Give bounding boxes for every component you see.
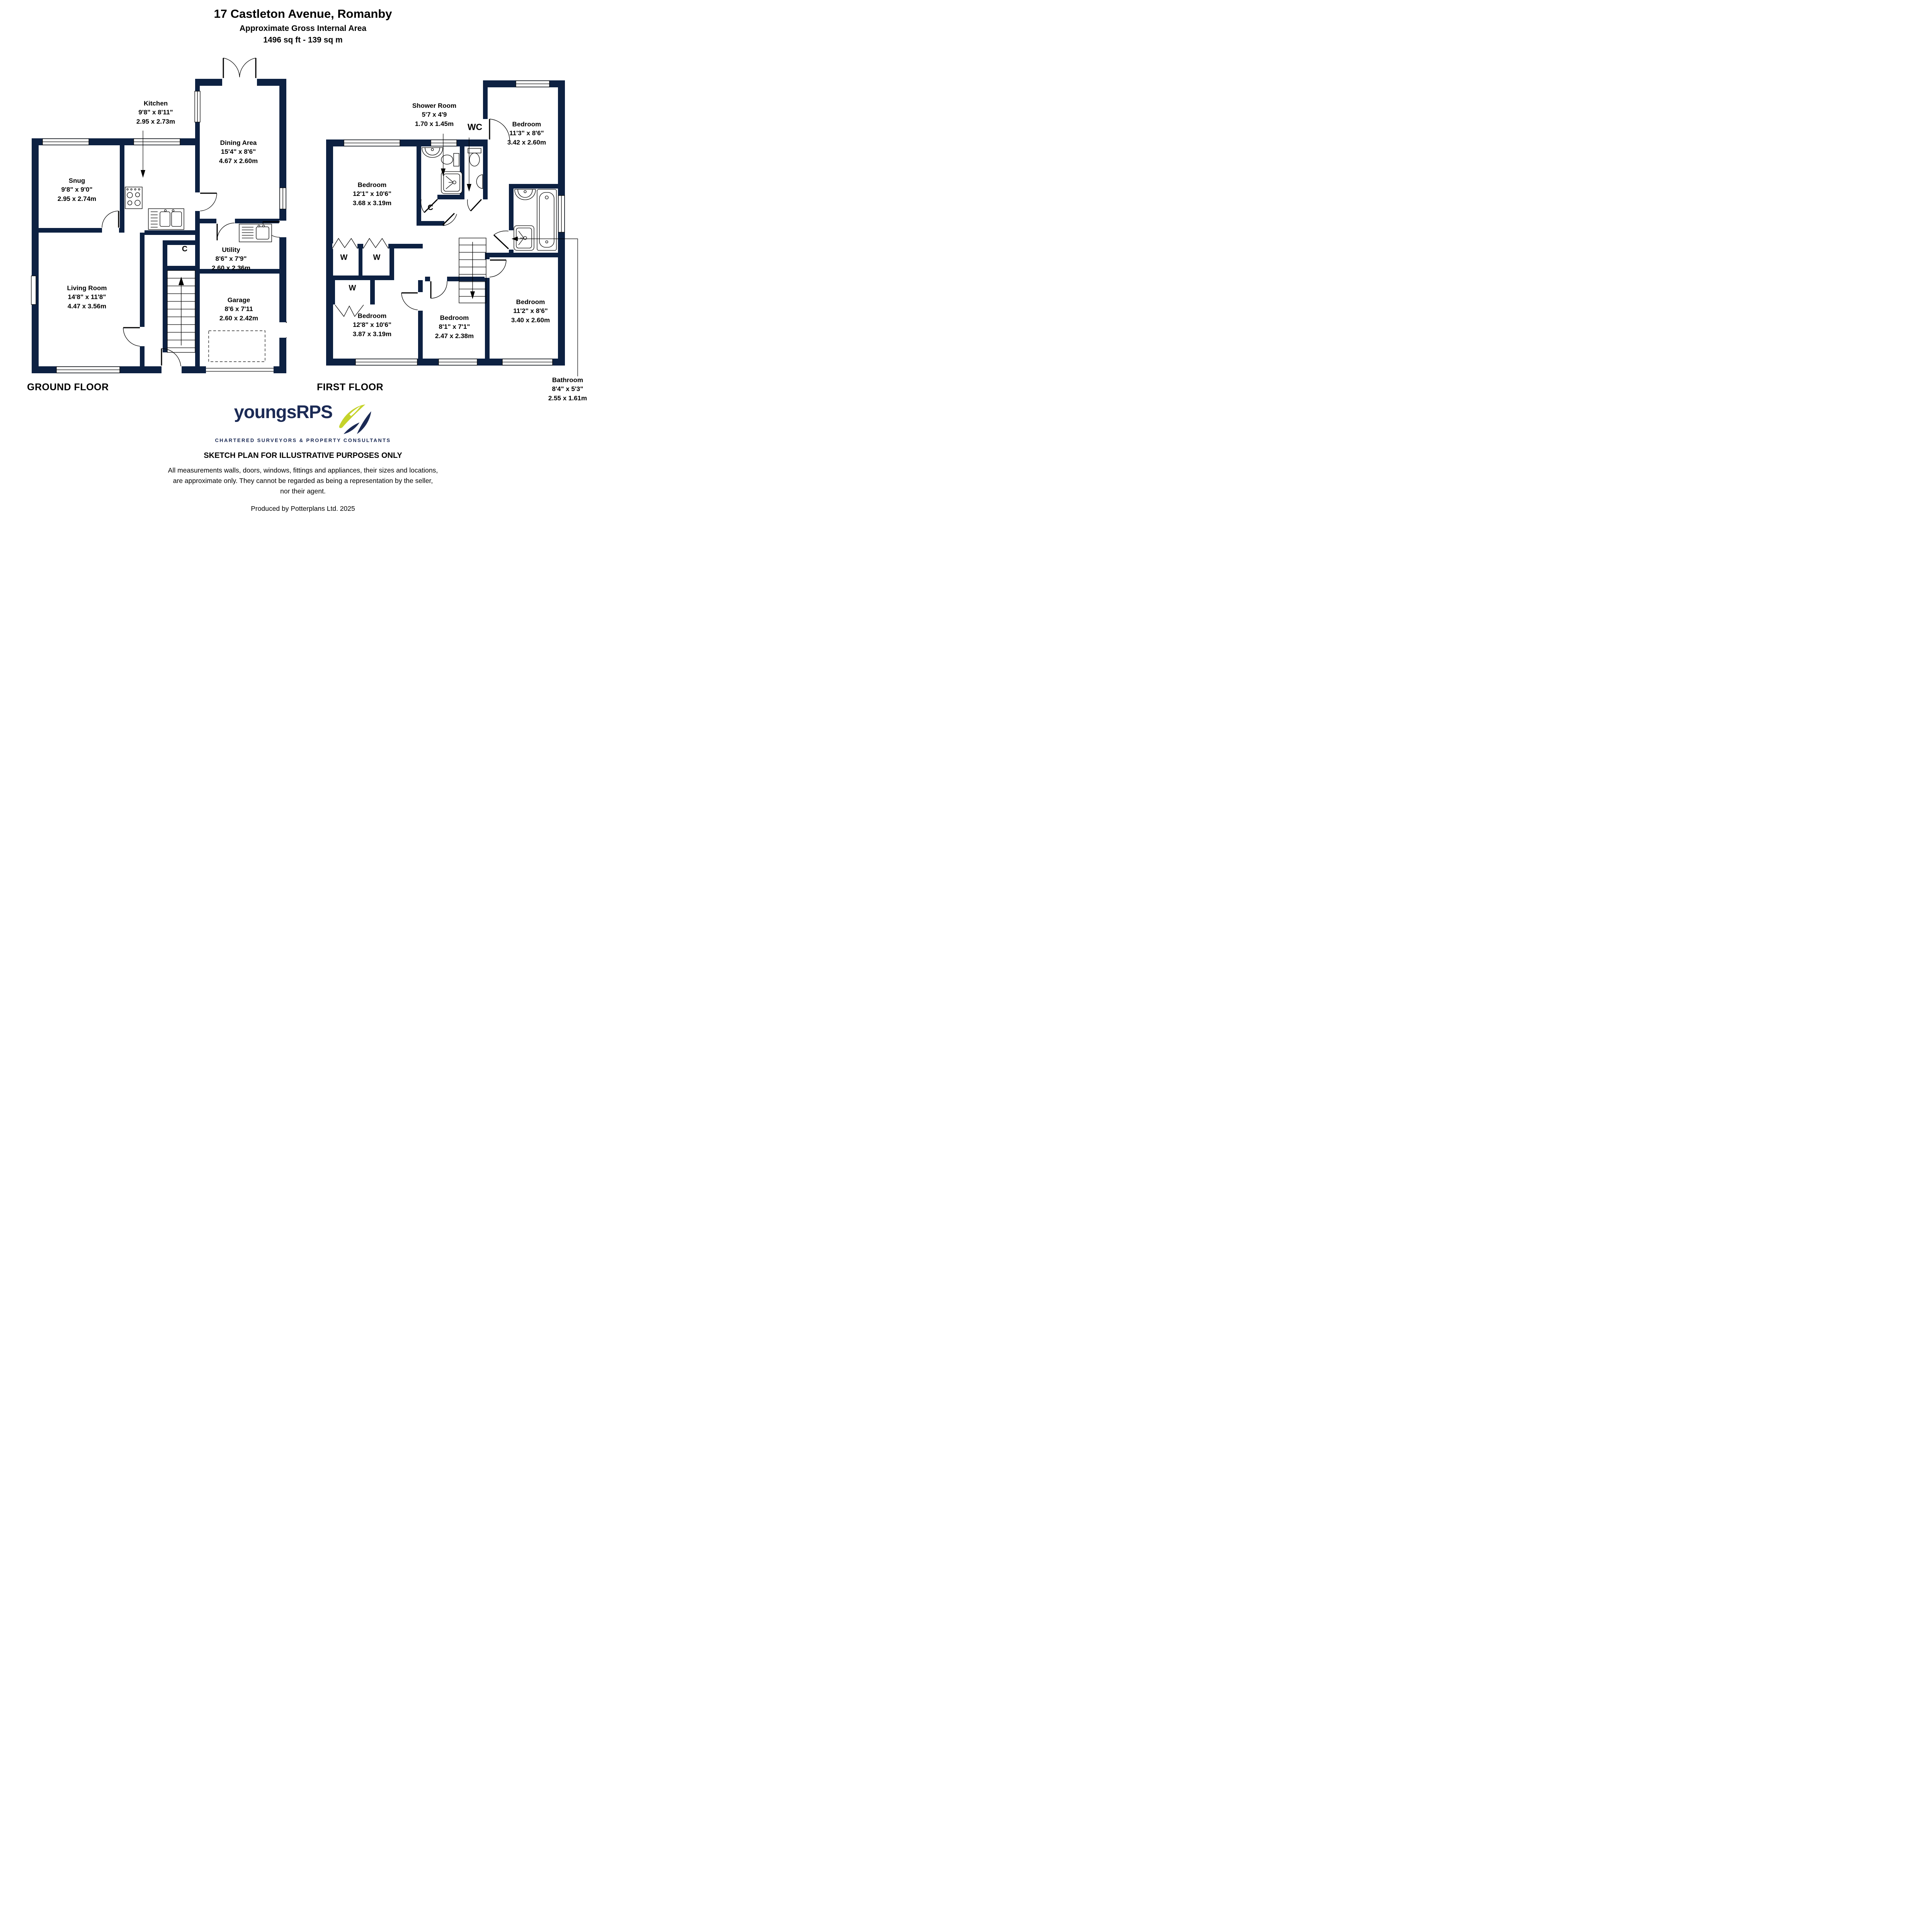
sketch-notice: SKETCH PLAN FOR ILLUSTRATIVE PURPOSES ON…: [0, 451, 606, 460]
room-label-bedroom-se: Bedroom 11'2" x 8'6" 3.40 x 2.60m: [511, 298, 550, 325]
room-dims-imperial: 11'3" x 8'6": [507, 129, 546, 138]
shower-room-basin-icon: [422, 148, 443, 158]
ff-stairs: [459, 238, 486, 303]
title-block: 17 Castleton Avenue, Romanby Approximate…: [0, 7, 606, 45]
room-dims-metric: 2.60 x 2.42m: [219, 314, 258, 323]
gf-doors: [102, 58, 287, 366]
room-label-shower-room: Shower Room 5'7 x 4'9 1.70 x 1.45m: [412, 101, 456, 128]
room-dims-metric: 2.55 x 1.61m: [548, 394, 587, 403]
room-dims-imperial: 5'7 x 4'9: [412, 110, 456, 119]
room-dims-metric: 2.47 x 2.38m: [435, 332, 474, 340]
agency-logo: youngsRPS CHARTERED SURVEYORS & PROPERTY…: [0, 403, 606, 443]
stairs-down-arrow-icon: [470, 291, 475, 299]
gf-stairs: [167, 270, 195, 352]
room-dims-imperial: 8'6" x 7'9": [212, 254, 250, 263]
wc-basin-icon: [476, 175, 483, 189]
floorplan-page: 17 Castleton Avenue, Romanby Approximate…: [0, 0, 606, 526]
room-label-bedroom-sw: Bedroom 12'8" x 10'6" 3.87 x 3.19m: [353, 311, 391, 338]
produced-by: Produced by Potterplans Ltd. 2025: [0, 505, 606, 513]
room-label-bedroom-ne: Bedroom 11'3" x 8'6" 3.42 x 2.60m: [507, 120, 546, 147]
disclaimer-text: All measurements walls, doors, windows, …: [168, 465, 438, 497]
cupboard-label-ff: C: [428, 204, 433, 213]
page-subtitle: Approximate Gross Internal Area: [0, 24, 606, 33]
wardrobe-label-3: W: [349, 284, 356, 293]
room-dims-metric: 1.70 x 1.45m: [412, 119, 456, 128]
garage-parking-outline: [209, 331, 265, 362]
room-dims-imperial: 11'2" x 8'6": [511, 306, 550, 315]
room-label-kitchen: Kitchen 9'8" x 8'11" 2.95 x 2.73m: [136, 99, 175, 126]
room-label-dining: Dining Area 15'4" x 8'6" 4.67 x 2.60m: [219, 138, 258, 165]
room-label-bedroom-nw: Bedroom 12'1" x 10'6" 3.68 x 3.19m: [353, 180, 391, 207]
room-name: Dining Area: [219, 138, 258, 147]
shower-cubicle-icon: [441, 172, 462, 194]
room-label-garage: Garage 8'6 x 7'11 2.60 x 2.42m: [219, 296, 258, 323]
wardrobe-label-2: W: [373, 253, 381, 262]
shower-room-toilet-icon: [441, 153, 459, 166]
room-dims-imperial: 9'8" x 8'11": [136, 108, 175, 117]
wc-label: WC: [468, 122, 482, 133]
brand-swoosh-icon: [335, 403, 372, 436]
room-label-snug: Snug 9'8" x 9'0" 2.95 x 2.74m: [58, 176, 96, 203]
room-dims-metric: 2.95 x 2.73m: [136, 117, 175, 126]
room-dims-metric: 3.68 x 3.19m: [353, 199, 391, 207]
bath-icon: [537, 189, 556, 250]
room-name: Bedroom: [507, 120, 546, 129]
room-dims-metric: 3.42 x 2.60m: [507, 138, 546, 147]
first-floor-title: FIRST FLOOR: [317, 382, 383, 393]
room-label-living: Living Room 14'8" x 11'8" 4.47 x 3.56m: [67, 284, 107, 311]
room-name: Bedroom: [511, 298, 550, 306]
brand-name: youngsRPS: [234, 403, 333, 421]
brand-tagline: CHARTERED SURVEYORS & PROPERTY CONSULTAN…: [215, 437, 391, 443]
ground-floor-title: GROUND FLOOR: [27, 382, 109, 393]
room-dims-imperial: 8'6 x 7'11: [219, 304, 258, 313]
room-label-bathroom: Bathroom 8'4" x 5'3" 2.55 x 1.61m: [548, 376, 587, 403]
hob-icon: [125, 187, 142, 209]
room-dims-imperial: 9'8" x 9'0": [58, 185, 96, 194]
room-dims-metric: 2.60 x 2.36m: [212, 264, 250, 272]
gf-kitchen-leader-arrow: [141, 131, 145, 178]
room-dims-imperial: 8'4" x 5'3": [548, 384, 587, 393]
room-name: Bedroom: [353, 311, 391, 320]
utility-sink-icon: [239, 224, 272, 242]
room-name: Garage: [219, 296, 258, 304]
room-name: Snug: [58, 176, 96, 185]
kitchen-sink-icon: [148, 209, 184, 230]
page-title: 17 Castleton Avenue, Romanby: [0, 7, 606, 21]
room-dims-imperial: 15'4" x 8'6": [219, 147, 258, 156]
page-area: 1496 sq ft - 139 sq m: [0, 36, 606, 45]
ground-floor-plan: [30, 49, 287, 377]
room-label-bedroom-s: Bedroom 8'1" x 7'1" 2.47 x 2.38m: [435, 313, 474, 340]
bathroom-basin-icon: [515, 189, 536, 200]
cupboard-label-gf: C: [182, 245, 187, 254]
room-label-utility: Utility 8'6" x 7'9" 2.60 x 2.36m: [212, 245, 250, 272]
room-dims-imperial: 12'1" x 10'6": [353, 189, 391, 198]
stairs-up-arrow-icon: [179, 277, 184, 285]
room-name: Kitchen: [136, 99, 175, 108]
room-dims-imperial: 8'1" x 7'1": [435, 322, 474, 331]
room-dims-metric: 3.87 x 3.19m: [353, 330, 391, 338]
room-dims-metric: 4.67 x 2.60m: [219, 156, 258, 165]
room-name: Shower Room: [412, 101, 456, 110]
room-dims-metric: 3.40 x 2.60m: [511, 316, 550, 325]
gf-garage-door: [206, 366, 274, 374]
room-dims-imperial: 12'8" x 10'6": [353, 320, 391, 329]
wc-toilet-icon: [468, 148, 481, 166]
room-dims-imperial: 14'8" x 11'8": [67, 293, 107, 301]
room-name: Utility: [212, 245, 250, 254]
room-dims-metric: 2.95 x 2.74m: [58, 194, 96, 203]
room-dims-metric: 4.47 x 3.56m: [67, 302, 107, 311]
room-name: Bedroom: [353, 180, 391, 189]
room-name: Living Room: [67, 284, 107, 293]
wardrobe-label-1: W: [340, 253, 348, 262]
room-name: Bedroom: [435, 313, 474, 322]
room-name: Bathroom: [548, 376, 587, 384]
